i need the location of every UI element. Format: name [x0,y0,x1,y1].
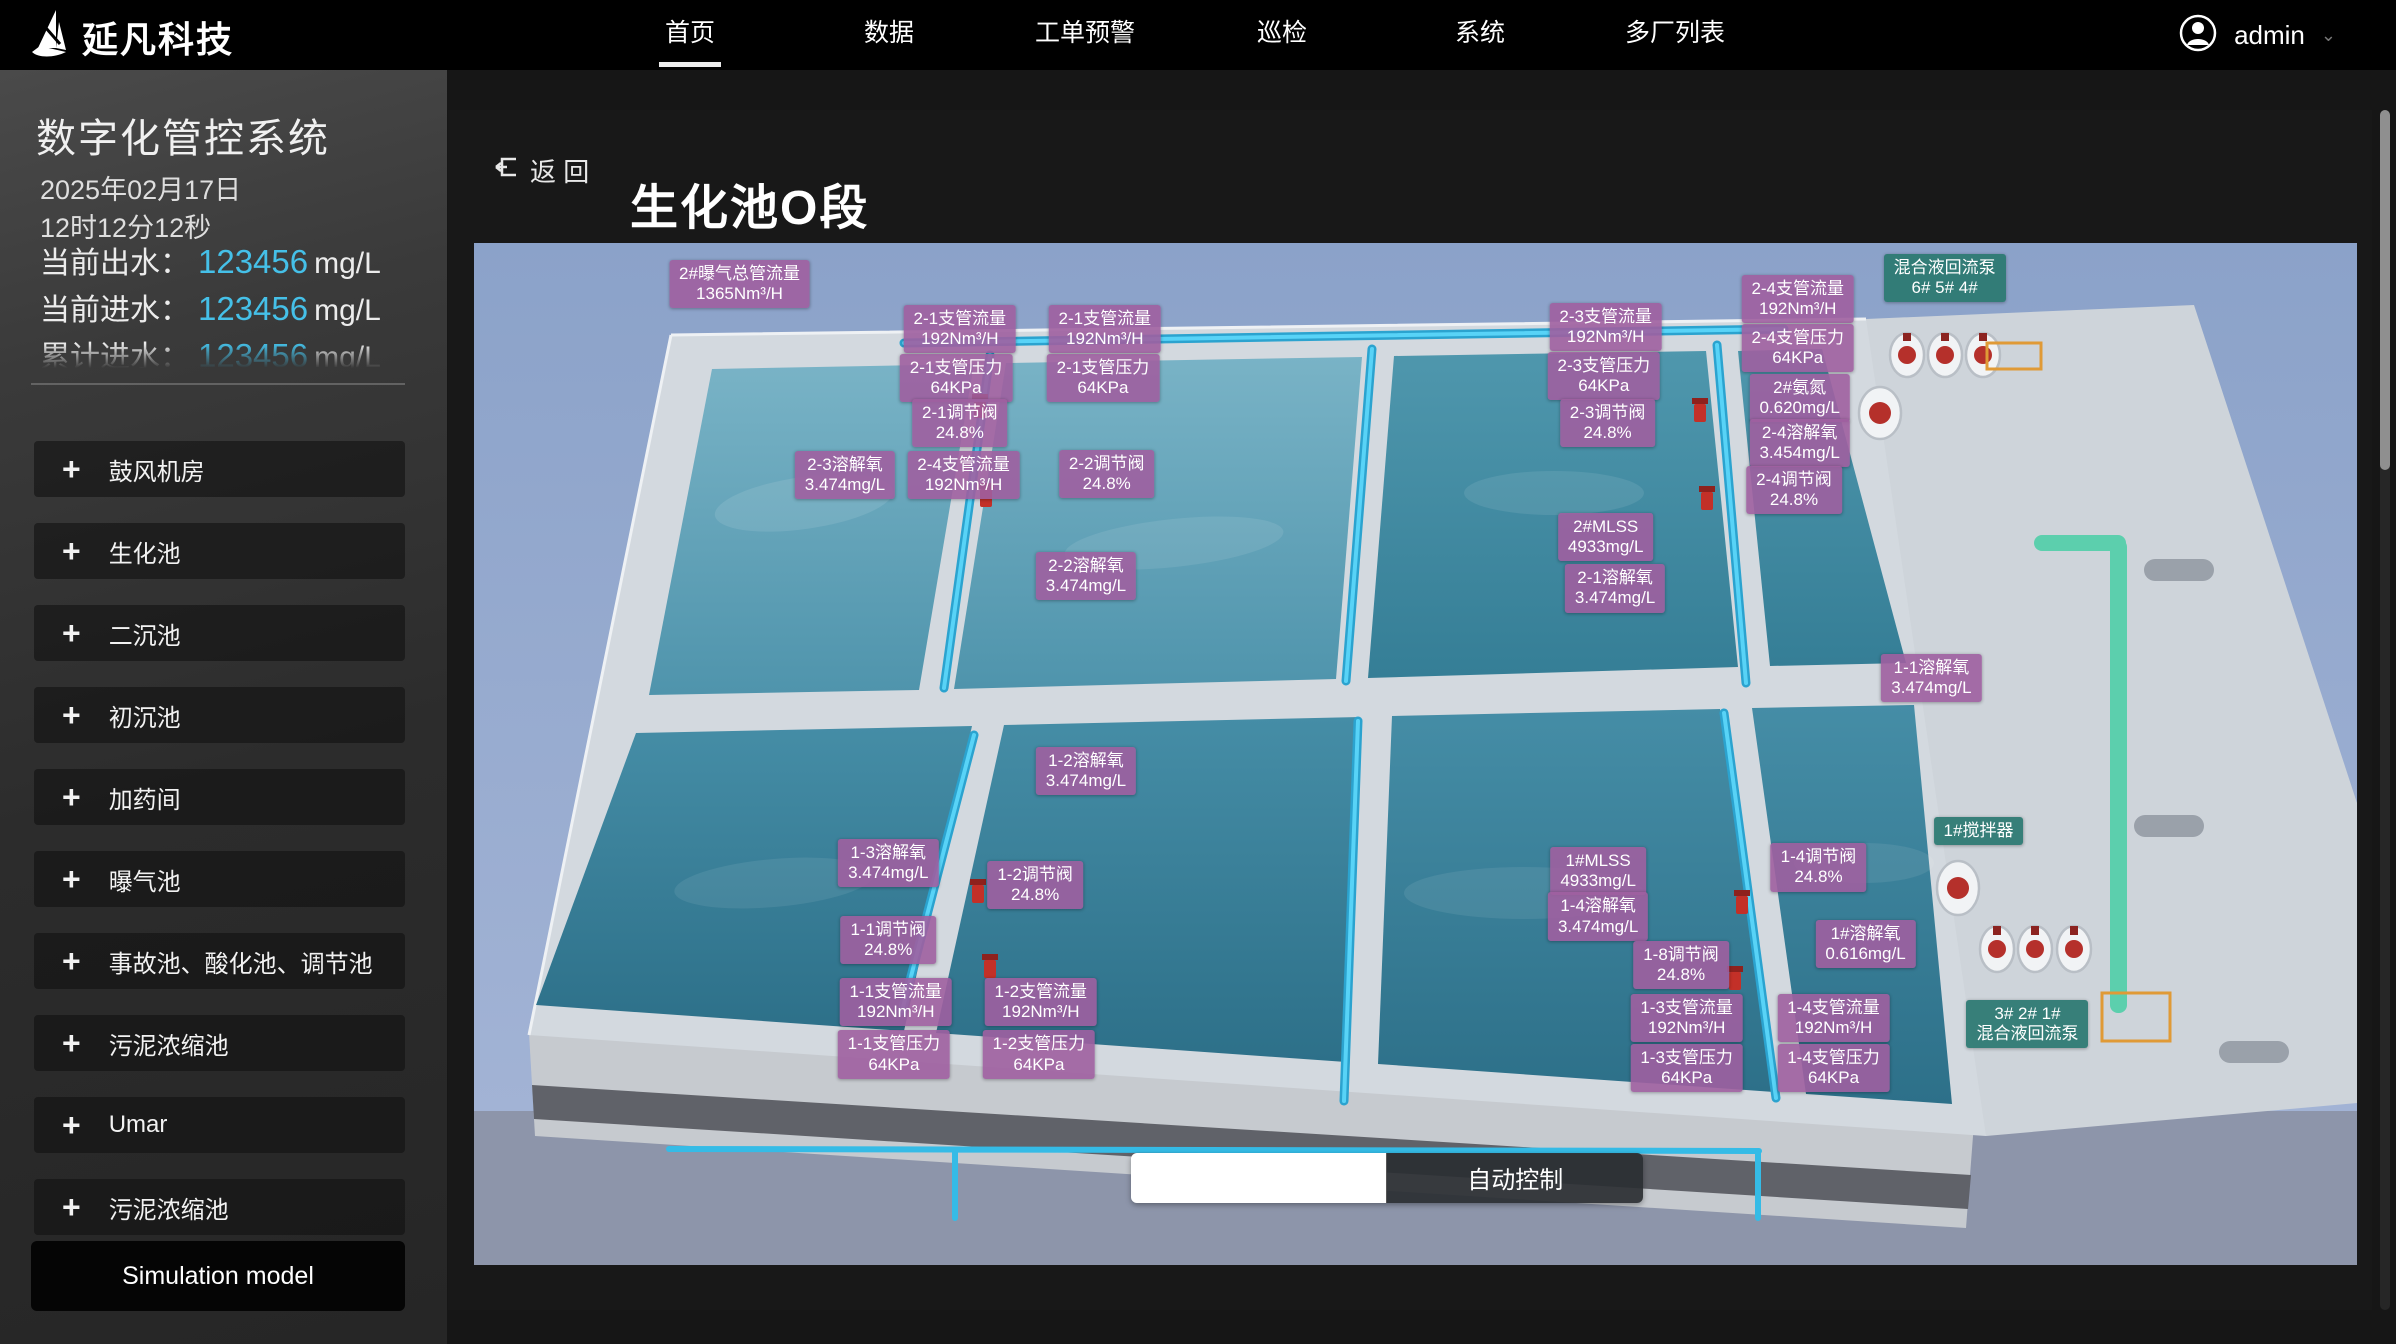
back-icon [494,154,520,187]
sensor-label-36: 1-3支管流量192Nm³/H [1630,994,1743,1042]
metric-value: 123456 [198,243,308,280]
sidebar-item-label: 加药间 [109,780,181,815]
treatment-pool-3d-render [474,243,2357,1265]
sidebar-item-label: 污泥浓缩池 [109,1190,229,1225]
sensor-label-28: 1-2支管流量192Nm³/H [984,978,1097,1026]
sensor-label-24: 1-3溶解氧3.474mg/L [838,839,938,887]
main-panel: 返 回 生化池O段 [448,110,2372,1310]
sidebar-item-10[interactable]: +污泥浓缩池 [34,1179,405,1235]
sensor-label-35: 1#溶解氧0.616mg/L [1815,920,1915,968]
metric-unit: mg/L [314,294,381,327]
sensor-label-31: 1#MLSS4933mg/L [1550,846,1646,894]
sensor-label-2: 2-1支管流量192Nm³/H [904,305,1017,353]
device-label-41: 3# 2# 1#混合液回流泵 [1966,1000,2088,1048]
sensor-label-25: 1-2调节阀24.8% [987,861,1083,909]
sidebar: 数字化管控系统 2025年02月17日 12时12分12秒 当前出水：12345… [0,70,447,1344]
sidebar-item-2[interactable]: +生化池 [34,523,405,579]
sidebar-item-4[interactable]: +初沉池 [34,687,405,743]
sensor-label-29: 1-1支管压力64KPa [838,1030,951,1078]
plus-icon: + [62,535,81,567]
device-label-19: 混合液回流泵6# 5# 4# [1884,254,2006,302]
sensor-label-23: 1-2溶解氧3.474mg/L [1036,747,1136,795]
sensor-label-6: 2-1调节阀24.8% [912,399,1008,447]
plus-icon: + [62,945,81,977]
sensor-label-21: 2-1溶解氧3.474mg/L [1565,564,1665,612]
nav-item-6[interactable]: 多厂列表 [1625,0,1725,70]
sensor-label-14: 2-4支管流量192Nm³/H [1741,275,1854,323]
plus-icon: + [62,781,81,813]
scene-3d-viewport[interactable]: 2#曝气总管流量1365Nm³/H2-1支管流量192Nm³/H2-1支管流量1… [474,243,2357,1265]
plus-icon: + [62,1191,81,1223]
sensor-label-10: 2-2溶解氧3.474mg/L [1036,552,1136,600]
brand-name: 延凡科技 [82,11,234,63]
plus-icon: + [62,1109,81,1141]
sensor-label-12: 2-3支管压力64KPa [1548,352,1661,400]
sensor-label-11: 2-3支管流量192Nm³/H [1549,303,1662,351]
metric-value: 123456 [198,290,308,327]
plus-icon: + [62,617,81,649]
sidebar-item-1[interactable]: +鼓风机房 [34,441,405,497]
brand-logo-icon [26,8,72,65]
page-title: 生化池O段 [630,168,869,238]
sensor-label-3: 2-1支管流量192Nm³/H [1049,305,1162,353]
sensor-label-13: 2-3调节阀24.8% [1560,399,1656,447]
plus-icon: + [62,699,81,731]
nav-item-3[interactable]: 工单预警 [1035,0,1135,70]
nav-item-5[interactable]: 系统 [1455,0,1505,70]
sensor-label-39: 1-4支管压力64KPa [1777,1044,1890,1092]
scrollbar-thumb[interactable] [2380,110,2390,470]
sidebar-item-label: 曝气池 [109,862,181,897]
metric-unit: mg/L [314,341,381,370]
metric-row-3: 累计进水：123456mg/L [40,332,381,370]
metric-label: 累计进水： [40,341,190,370]
sensor-label-8: 2-4支管流量192Nm³/H [907,451,1020,499]
current-date: 2025年02月17日 [40,168,241,207]
system-title: 数字化管控系统 [36,106,330,164]
sidebar-item-8[interactable]: +污泥浓缩池 [34,1015,405,1071]
sensor-label-26: 1-1调节阀24.8% [840,916,936,964]
app-window: 延凡科技 首页数据工单预警巡检系统多厂列表 admin ⌄ 数字化管控系统 20… [0,0,2396,1344]
sidebar-item-label: 生化池 [109,534,181,569]
sensor-label-17: 2-4溶解氧3.454mg/L [1749,419,1849,467]
back-button[interactable]: 返 回 [494,152,589,189]
sidebar-item-label: Umar [109,1111,168,1139]
metric-label: 当前进水： [40,294,190,327]
plus-icon: + [62,1027,81,1059]
plus-icon: + [62,863,81,895]
sensor-label-37: 1-4支管流量192Nm³/H [1777,994,1890,1042]
brand[interactable]: 延凡科技 [26,8,234,65]
sidebar-item-label: 初沉池 [109,698,181,733]
top-nav-bar: 延凡科技 首页数据工单预警巡检系统多厂列表 admin ⌄ [0,0,2396,70]
sensor-label-16: 2#氨氮0.620mg/L [1749,374,1849,422]
sensor-label-20: 2#MLSS4933mg/L [1558,513,1654,561]
control-mode-toggle: 自动控制 [1131,1153,1643,1203]
sensor-label-27: 1-1支管流量192Nm³/H [839,978,952,1026]
username: admin [2234,20,2305,51]
auto-control-button[interactable]: 自动控制 [1386,1153,1643,1203]
user-avatar-icon [2178,13,2218,58]
page-scrollbar [2380,110,2390,1310]
nav-item-2[interactable]: 数据 [864,0,914,70]
sidebar-item-6[interactable]: +曝气池 [34,851,405,907]
sensor-label-32: 1-4调节阀24.8% [1771,843,1867,891]
sidebar-item-7[interactable]: +事故池、酸化池、调节池 [34,933,405,989]
sidebar-item-label: 污泥浓缩池 [109,1026,229,1061]
sensor-label-4: 2-1支管压力64KPa [900,354,1013,402]
sensor-label-22: 1-1溶解氧3.474mg/L [1881,654,1981,702]
sidebar-item-label: 鼓风机房 [109,452,205,487]
sensor-label-38: 1-3支管压力64KPa [1630,1044,1743,1092]
metric-row-1: 当前出水：123456mg/L [40,238,381,282]
sensor-label-1: 2#曝气总管流量1365Nm³/H [669,260,810,308]
metric-unit: mg/L [314,247,381,280]
back-label: 返 回 [530,152,589,189]
sensor-label-30: 1-2支管压力64KPa [983,1030,1096,1078]
simulation-model-button[interactable]: Simulation model [31,1241,405,1311]
device-label-40: 1#搅拌器 [1934,817,2024,845]
nav-item-1[interactable]: 首页 [665,0,715,70]
sidebar-item-label: 二沉池 [109,616,181,651]
sensor-label-9: 2-2调节阀24.8% [1059,450,1155,498]
nav-item-4[interactable]: 巡检 [1257,0,1307,70]
sidebar-item-5[interactable]: +加药间 [34,769,405,825]
sidebar-item-9[interactable]: +Umar [34,1097,405,1153]
metric-row-2: 当前进水：123456mg/L [40,285,381,329]
sensor-label-18: 2-4调节阀24.8% [1746,466,1842,514]
chevron-down-icon: ⌄ [2321,25,2336,46]
metric-value: 123456 [198,337,308,370]
sidebar-item-3[interactable]: +二沉池 [34,605,405,661]
user-menu[interactable]: admin ⌄ [2178,0,2336,70]
manual-control-button[interactable] [1131,1153,1386,1203]
sensor-label-5: 2-1支管压力64KPa [1047,354,1160,402]
sidebar-divider [31,383,405,385]
plus-icon: + [62,453,81,485]
sensor-label-33: 1-4溶解氧3.474mg/L [1548,892,1648,940]
sidebar-item-label: 事故池、酸化池、调节池 [109,944,373,979]
sensor-label-34: 1-8调节阀24.8% [1633,940,1729,988]
metric-label: 当前出水： [40,247,190,280]
sensor-label-7: 2-3溶解氧3.474mg/L [795,451,895,499]
sensor-label-15: 2-4支管压力64KPa [1741,324,1854,372]
